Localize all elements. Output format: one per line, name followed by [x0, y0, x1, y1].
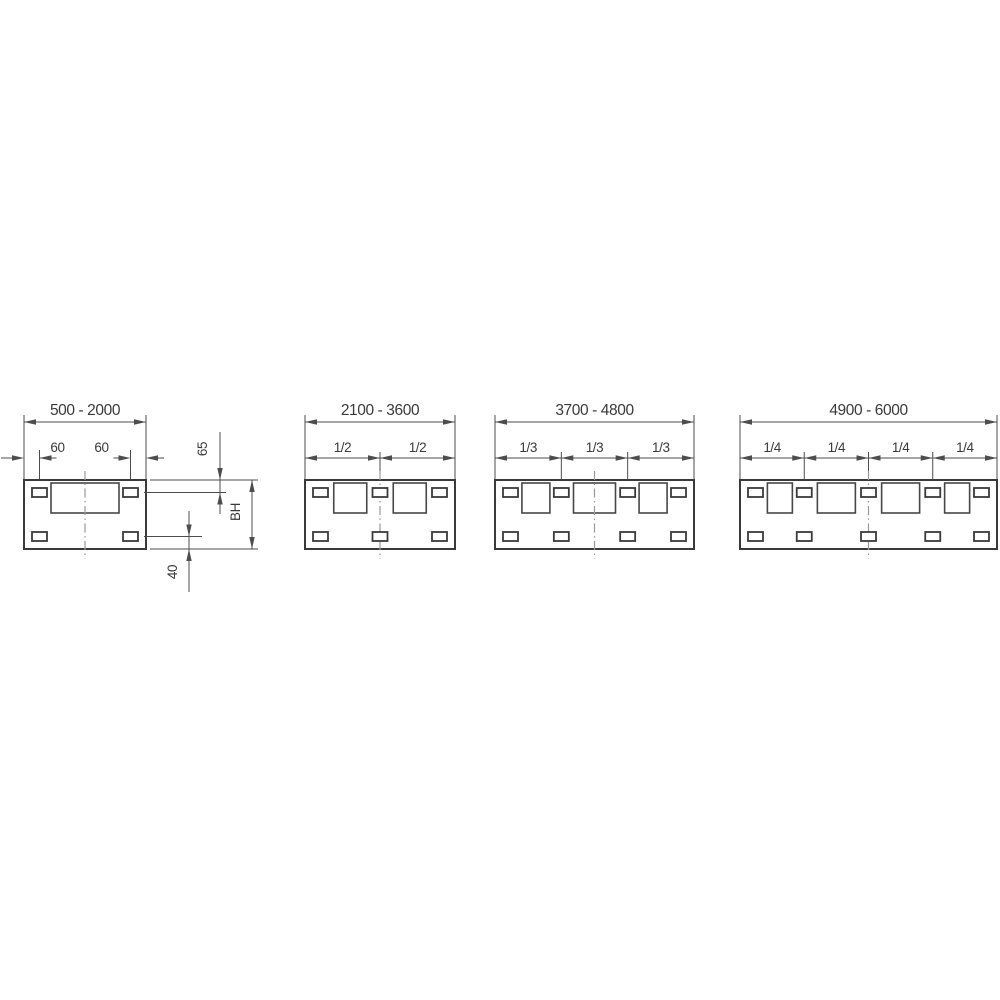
- mounting-slot: [861, 532, 876, 541]
- panel-opening: [639, 483, 667, 513]
- fraction-label: 1/4: [892, 440, 910, 455]
- dimension-arrowhead: [985, 455, 997, 460]
- edge-offset-label: 60: [50, 440, 64, 455]
- bottom-offset-label: 40: [165, 565, 180, 579]
- dimension-arrowhead: [249, 537, 254, 549]
- drawing-page: 500 - 200060602100 - 36001/21/23700 - 48…: [0, 0, 1000, 1000]
- dimension-arrowhead: [682, 455, 694, 460]
- panel-opening: [767, 483, 792, 513]
- dimension-arrowhead: [921, 455, 933, 460]
- panel-opening: [945, 483, 970, 513]
- mounting-slot: [748, 488, 763, 497]
- mounting-slot: [748, 532, 763, 541]
- mounting-slot: [313, 488, 328, 497]
- dimension-arrowhead: [380, 455, 392, 460]
- panel-height-label: BH: [228, 503, 243, 521]
- mounting-slot: [671, 532, 686, 541]
- mounting-slot: [861, 488, 876, 497]
- mounting-slot: [620, 532, 635, 541]
- dimension-arrowhead: [985, 419, 997, 424]
- edge-offset-label: 60: [94, 440, 108, 455]
- top-offset-label: 65: [195, 442, 210, 456]
- dimension-arrowhead: [249, 480, 254, 492]
- dimension-arrowhead: [933, 455, 945, 460]
- dimension-arrowhead: [869, 455, 881, 460]
- mounting-slot: [32, 488, 47, 497]
- dimension-arrowhead: [549, 455, 561, 460]
- panel-opening: [817, 483, 855, 513]
- dimension-arrowhead: [561, 455, 573, 460]
- mounting-slot: [32, 532, 47, 541]
- dimension-arrowhead: [305, 419, 317, 424]
- dimension-arrowhead: [24, 419, 36, 424]
- dimension-arrowhead: [443, 419, 455, 424]
- mounting-slot: [620, 488, 635, 497]
- fraction-label: 1/4: [828, 440, 846, 455]
- dimension-arrowhead: [217, 493, 222, 505]
- dimension-arrowhead: [792, 455, 804, 460]
- range-dimension-label: 3700 - 4800: [555, 402, 634, 419]
- dimension-drawing-canvas: 500 - 200060602100 - 36001/21/23700 - 48…: [0, 0, 1000, 1000]
- dimension-arrowhead: [134, 419, 146, 424]
- dimension-arrowhead: [146, 455, 158, 460]
- mounting-slot: [373, 488, 388, 497]
- mounting-slot: [313, 532, 328, 541]
- dimension-arrowhead: [495, 419, 507, 424]
- dimension-arrowhead: [495, 455, 507, 460]
- fraction-label: 1/2: [409, 440, 427, 455]
- dimension-arrowhead: [857, 455, 869, 460]
- mounting-slot: [974, 488, 989, 497]
- mounting-slot: [925, 532, 940, 541]
- fraction-label: 1/3: [519, 440, 537, 455]
- dimension-arrowhead: [740, 455, 752, 460]
- fraction-label: 1/4: [763, 440, 781, 455]
- mounting-slot: [797, 488, 812, 497]
- range-dimension-label: 4900 - 6000: [829, 402, 908, 419]
- panel-opening: [334, 483, 367, 513]
- mounting-slot: [554, 532, 569, 541]
- dimension-arrowhead: [804, 455, 816, 460]
- panel-opening: [882, 483, 920, 513]
- mounting-slot: [123, 532, 138, 541]
- dimension-arrowhead: [740, 419, 752, 424]
- dimension-arrowhead: [217, 468, 222, 480]
- fraction-label: 1/3: [652, 440, 670, 455]
- dimension-arrowhead: [12, 455, 24, 460]
- range-dimension-label: 500 - 2000: [50, 402, 121, 419]
- mounting-slot: [432, 488, 447, 497]
- fraction-label: 1/2: [334, 440, 352, 455]
- dimension-arrowhead: [186, 525, 191, 537]
- mounting-slot: [503, 488, 518, 497]
- panel-opening: [393, 483, 426, 513]
- dimension-arrowhead: [368, 455, 380, 460]
- dimension-arrowhead: [682, 419, 694, 424]
- mounting-slot: [925, 488, 940, 497]
- mounting-slot: [974, 532, 989, 541]
- fraction-label: 1/3: [586, 440, 604, 455]
- mounting-slot: [373, 532, 388, 541]
- dimension-arrowhead: [305, 455, 317, 460]
- dimension-arrowhead: [40, 455, 52, 460]
- fraction-label: 1/4: [956, 440, 974, 455]
- mounting-slot: [503, 532, 518, 541]
- panel-opening: [522, 483, 550, 513]
- dimension-arrowhead: [616, 455, 628, 460]
- mounting-slot: [123, 488, 138, 497]
- dimension-arrowhead: [119, 455, 131, 460]
- dimension-arrowhead: [186, 549, 191, 561]
- mounting-slot: [671, 488, 686, 497]
- dimension-arrowhead: [628, 455, 640, 460]
- dimension-arrowhead: [443, 455, 455, 460]
- mounting-slot: [554, 488, 569, 497]
- range-dimension-label: 2100 - 3600: [341, 402, 420, 419]
- mounting-slot: [432, 532, 447, 541]
- mounting-slot: [797, 532, 812, 541]
